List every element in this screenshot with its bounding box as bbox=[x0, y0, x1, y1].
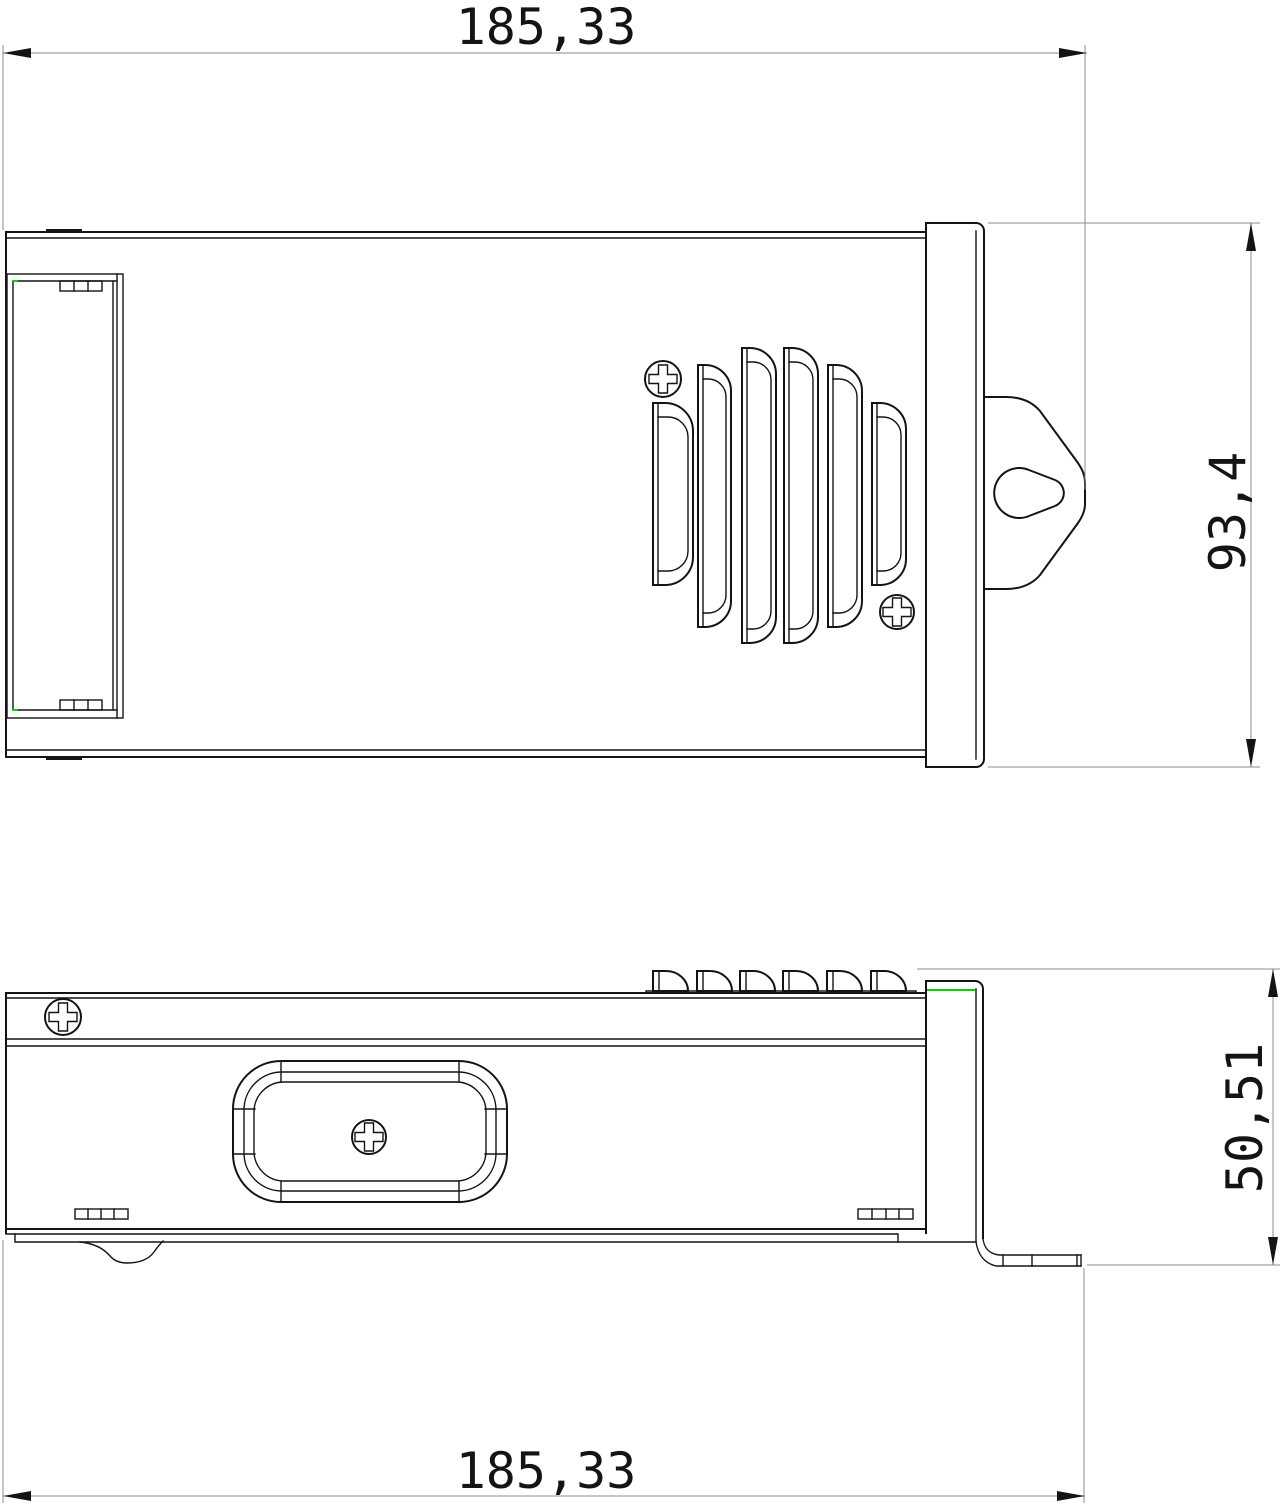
arrowhead-down bbox=[1268, 1237, 1278, 1265]
vent-louvers-top-view bbox=[653, 348, 906, 643]
technical-drawing: 185,33 93,4 50,51 185,33 bbox=[0, 0, 1280, 1504]
phillips-screw bbox=[45, 999, 81, 1035]
phillips-screw bbox=[880, 595, 914, 629]
dimension-label-right-height: 93,4 bbox=[1199, 452, 1257, 572]
louver-profile bbox=[740, 971, 775, 991]
din-clip-segments bbox=[75, 1209, 913, 1219]
louver bbox=[742, 348, 776, 643]
louver bbox=[784, 348, 818, 643]
cad-sheet: 185,33 93,4 50,51 185,33 bbox=[0, 0, 1280, 1504]
terminal-compartment bbox=[7, 274, 123, 718]
louver bbox=[828, 365, 862, 627]
louver-profile bbox=[827, 971, 862, 991]
mounting-tab-top-view bbox=[984, 397, 1085, 589]
dimension-label-top-width: 185,33 bbox=[456, 0, 637, 56]
louver bbox=[872, 403, 906, 585]
louver-profile bbox=[783, 971, 818, 991]
arrowhead-up bbox=[1268, 969, 1278, 997]
phillips-screw bbox=[645, 361, 681, 397]
vent-louver-profiles bbox=[646, 971, 916, 993]
label-recess-window bbox=[233, 1061, 507, 1202]
arrowhead-left bbox=[3, 1491, 31, 1501]
dimension-label-bottom-width: 185,33 bbox=[456, 1442, 637, 1500]
louver bbox=[653, 403, 693, 585]
side-view-body-outline bbox=[6, 993, 976, 1242]
end-cap-top-view bbox=[926, 223, 984, 767]
phillips-screw bbox=[352, 1120, 386, 1154]
louver bbox=[698, 365, 731, 627]
mounting-bracket-side-view bbox=[976, 1238, 1081, 1266]
dimension-lines: 185,33 93,4 50,51 185,33 bbox=[3, 0, 1280, 1503]
clip-tab-top bbox=[60, 281, 102, 291]
louver-profile bbox=[653, 971, 688, 991]
clip-tab-bottom bbox=[60, 700, 102, 710]
end-cap-side-view bbox=[926, 981, 983, 1242]
top-edge-tabs bbox=[48, 231, 80, 758]
louver-profile bbox=[871, 971, 906, 991]
arrowhead-right bbox=[1057, 1491, 1085, 1501]
arrowhead-left bbox=[3, 48, 31, 58]
foot-bump bbox=[80, 1241, 163, 1263]
top-view bbox=[6, 223, 1085, 767]
side-view bbox=[6, 971, 1081, 1266]
dimension-bottom-width: 185,33 bbox=[3, 1240, 1085, 1503]
arrowhead-down bbox=[1246, 739, 1256, 767]
arrowhead-up bbox=[1246, 223, 1256, 251]
louver-profile bbox=[697, 971, 732, 991]
dimension-top-width: 185,33 bbox=[3, 0, 1087, 490]
arrowhead-right bbox=[1059, 48, 1087, 58]
dimension-label-side-height: 50,51 bbox=[1216, 1043, 1274, 1194]
